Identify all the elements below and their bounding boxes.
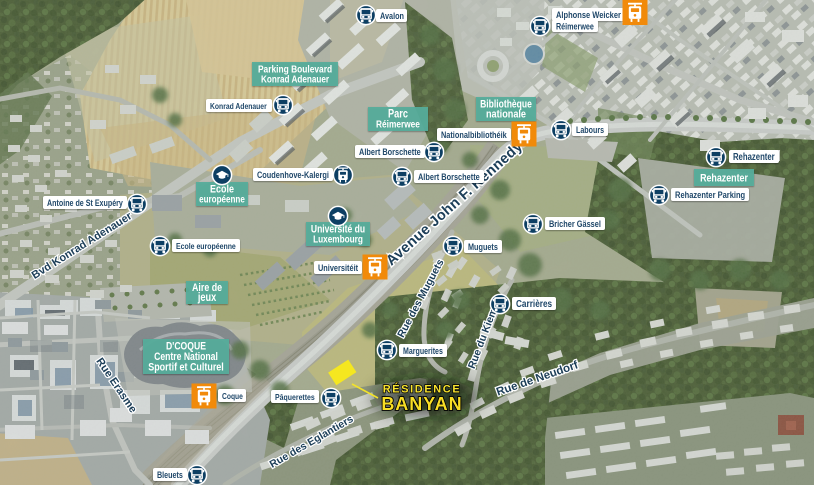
svg-text:Réimerwee: Réimerwee [376, 118, 420, 130]
svg-text:Sportif et Culturel: Sportif et Culturel [148, 362, 224, 374]
svg-text:Nationalbibliothéik: Nationalbibliothéik [441, 129, 507, 140]
svg-text:européenne: européenne [199, 194, 245, 205]
svg-text:Bleuets: Bleuets [157, 470, 183, 480]
svg-text:Albert Borschette: Albert Borschette [418, 171, 480, 182]
svg-text:Konrad Adenauer: Konrad Adenauer [261, 74, 329, 85]
svg-text:Alphonse Weicker: Alphonse Weicker [556, 9, 622, 20]
svg-text:BANYAN: BANYAN [381, 394, 462, 414]
svg-text:Rehazenter: Rehazenter [700, 173, 748, 185]
svg-text:Avalon: Avalon [380, 11, 404, 21]
svg-text:Antoine de St Exupéry: Antoine de St Exupéry [47, 198, 123, 208]
svg-text:Luxembourg: Luxembourg [313, 234, 363, 245]
svg-text:Coque: Coque [222, 391, 243, 401]
svg-text:Universitéit: Universitéit [318, 262, 358, 273]
svg-text:jeux: jeux [197, 292, 216, 304]
svg-text:nationale: nationale [486, 109, 526, 121]
svg-text:Bricher Gässel: Bricher Gässel [549, 218, 601, 229]
svg-text:Muguets: Muguets [468, 242, 498, 252]
svg-text:Réimerwee: Réimerwee [556, 22, 594, 32]
svg-text:Ecole européenne: Ecole européenne [176, 241, 236, 251]
svg-text:Carrières: Carrières [516, 298, 552, 309]
svg-text:Albert Borschette: Albert Borschette [359, 146, 421, 157]
svg-text:Rehazenter: Rehazenter [733, 151, 775, 162]
svg-text:Marguerites: Marguerites [403, 346, 443, 356]
svg-text:Coudenhove-Kalergi: Coudenhove-Kalergi [257, 169, 329, 180]
svg-text:Labours: Labours [576, 125, 605, 135]
svg-text:Konrad Adenauer: Konrad Adenauer [210, 101, 267, 111]
svg-text:Rehazenter Parking: Rehazenter Parking [675, 189, 745, 200]
svg-text:Pâquerettes: Pâquerettes [275, 392, 315, 402]
